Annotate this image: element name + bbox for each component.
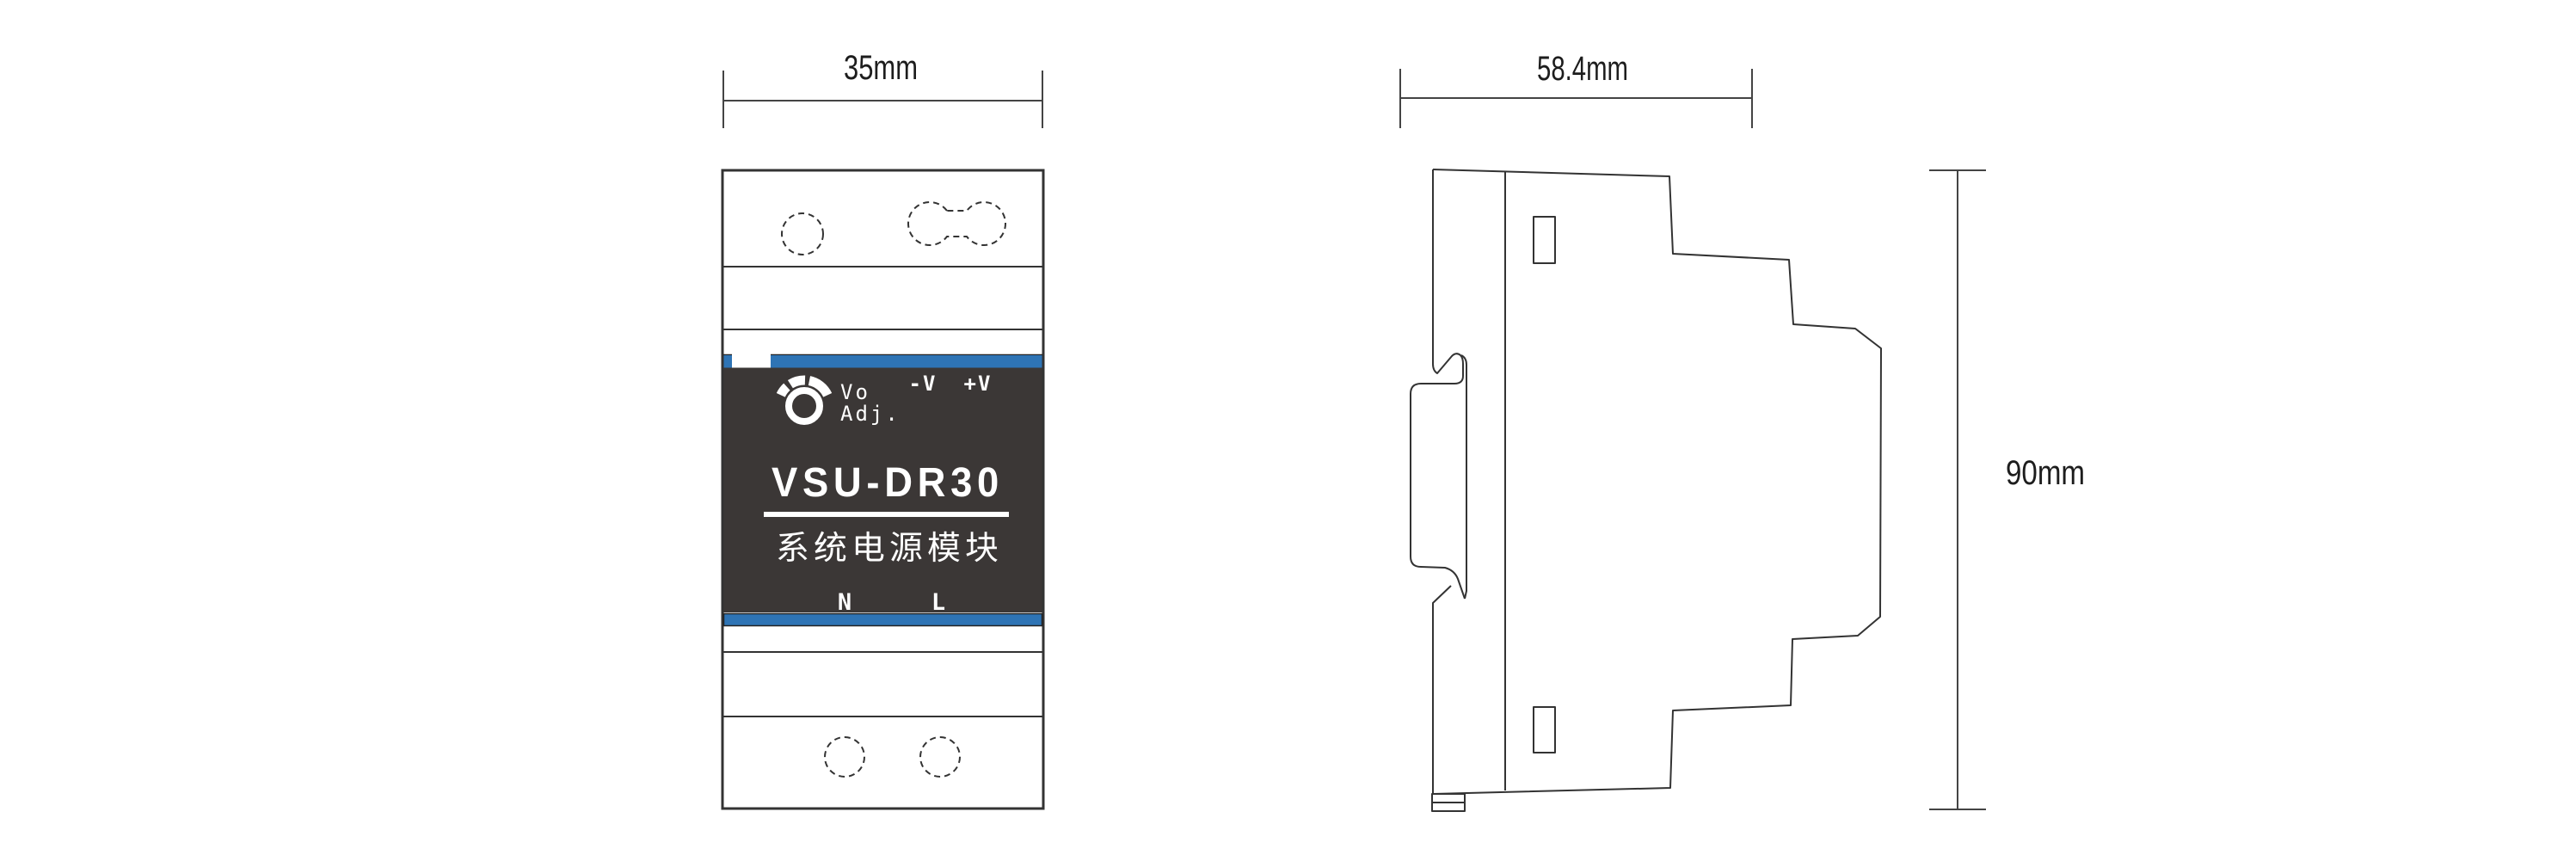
vent-slot-bottom (1534, 707, 1555, 753)
module-dimension-drawing: 35mm Vo Adj. -V +V VSU-DR30 系统电源模块 N L (0, 0, 2576, 861)
front-width-dimension-label: 35mm (844, 49, 918, 87)
output-positive-label: +V (964, 372, 993, 396)
front-view: 35mm Vo Adj. -V +V VSU-DR30 系统电源模块 N L (722, 49, 1043, 809)
side-height-dimension (1929, 170, 1986, 809)
model-subtitle: 系统电源模块 (776, 529, 1003, 567)
accent-bar-top (724, 355, 1042, 368)
knob-label-line1: Vo (840, 380, 870, 404)
accent-bar-top-notch (732, 354, 771, 368)
side-lower-left-wall (1433, 586, 1451, 794)
side-profile-outline (1433, 169, 1881, 794)
side-view: 58.4mm 90mm (1400, 50, 2085, 811)
vent-slot-top (1534, 217, 1555, 263)
accent-bar-bottom (724, 614, 1042, 626)
terminal-line-label: L (931, 589, 945, 616)
mounting-hole-slotted (908, 202, 1005, 245)
model-name: VSU-DR30 (772, 460, 1004, 506)
knob-label-line2: Adj. (840, 402, 901, 426)
side-height-dimension-label: 90mm (2006, 454, 2085, 492)
label-divider-rule (764, 512, 1009, 517)
mounting-hole-round (782, 213, 823, 255)
terminal-neutral-label: N (838, 589, 851, 616)
terminal-hole-right (920, 737, 960, 777)
output-negative-label: -V (909, 372, 938, 396)
side-width-dimension-label: 58.4mm (1537, 50, 1628, 88)
dimension-drawing-page: 35mm Vo Adj. -V +V VSU-DR30 系统电源模块 N L (0, 0, 2576, 861)
terminal-hole-left (825, 737, 864, 777)
din-clip-channel-wall (1461, 355, 1466, 599)
din-clip-body (1411, 169, 1465, 599)
